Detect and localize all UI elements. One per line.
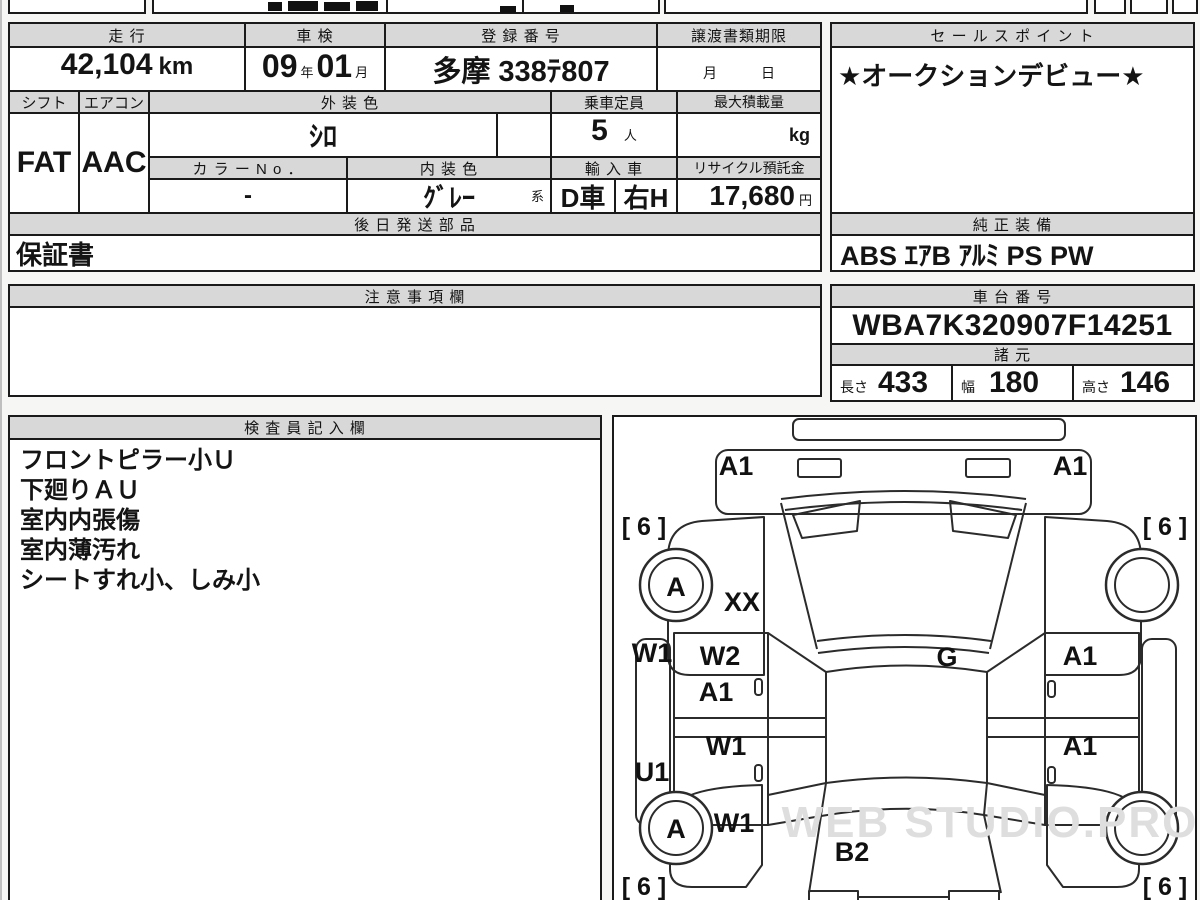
registration-header-label: 登 録 番 号 [481,25,561,46]
top-cut-cell [1094,0,1126,14]
spec-length-cell: 長さ 433 [830,364,953,402]
spec-length-label: 長さ [840,377,868,397]
interior-color-text: ｸﾞﾚｰ [423,178,475,215]
recycle-fee-value: 17,680 円 [676,178,822,214]
mileage-number: 42,104 [61,48,153,82]
shift-value: FAT [8,112,80,214]
equipment-text: ABS ｴｱB ｱﾙﾐ PS PW [840,234,1094,273]
recycle-header: リサイクル預託金 [676,156,822,180]
top-cut-cell [1172,0,1198,14]
damage-code-label: W1 [706,731,747,761]
handle-text: 右H [624,178,669,215]
later-parts-value: 保証書 [8,234,822,272]
equipment-value: ABS ｴｱB ｱﾙﾐ PS PW [830,234,1195,272]
capacity-header: 乗車定員 [550,90,678,114]
car-diagram-box: WEB STUDIO.PRO A1A1[ 6 ][ 6 ]AXXW1W2A1GA… [612,415,1197,900]
top-cut-cell [1130,0,1168,14]
cut-text-fragment [356,1,378,11]
import-header-label: 輸 入 車 [585,158,643,179]
recycle-header-label: リサイクル預託金 [693,158,804,178]
sales-point-text: ★オークションデビュー★ [838,56,1145,93]
transfer-month-label: 月 [703,63,717,83]
capacity-number: 5 [591,114,608,148]
cut-text-fragment [560,5,574,12]
notes-header-label: 注 意 事 項 欄 [365,286,466,307]
damage-code-label: A1 [719,451,754,481]
registration-header: 登 録 番 号 [384,22,658,48]
damage-code-label: [ 6 ] [1143,873,1187,900]
sales-point-value: ★オークションデビュー★ [830,46,1195,214]
capacity-unit: 人 [624,125,637,144]
damage-code-label: A1 [699,677,734,707]
top-cut-cell [8,0,146,14]
recycle-fee-unit: 円 [799,190,812,209]
import-type-text: D車 [561,178,606,215]
max-load-unit: kg [789,125,810,146]
transfer-docs-header: 譲渡書類期限 [656,22,822,48]
mileage-header: 走 行 [8,22,246,48]
damage-code-label: [ 6 ] [622,873,666,900]
cut-text-fragment [500,6,516,13]
cut-text-fragment [268,2,282,11]
shift-header-label: シフト [21,92,66,113]
max-load-header-label: 最大積載量 [714,92,784,112]
damage-code-label: B2 [835,837,870,867]
mileage-value: 42,104 km [8,46,246,92]
damage-code-label: A1 [1053,451,1088,481]
color-no-header-label: カ ラ ー N o ． [192,158,303,179]
later-parts-header-label: 後 日 発 送 部 品 [354,214,476,235]
chassis-header: 車 台 番 号 [830,284,1195,308]
damage-code-label: G [936,642,957,672]
inspection-value: 09 年 01 月 [244,46,386,92]
inspection-month: 01 [317,48,353,85]
exterior-color-value: ｼﾛ [148,112,498,158]
month-suffix: 月 [355,62,368,81]
shift-text: FAT [17,146,71,180]
spec-height-value: 146 [1120,366,1170,400]
recycle-fee-number: 17,680 [709,180,795,212]
exterior-color-text: ｼﾛ [309,115,337,155]
interior-color-header: 内 装 色 [346,156,552,180]
mileage-unit: km [159,53,194,81]
registration-number: 多摩 338ﾃ807 [432,48,609,90]
scan-edge [0,0,2,900]
damage-code-label: A [666,572,686,602]
equipment-header: 純 正 装 備 [830,212,1195,236]
inspector-box: フロントピラー小Ｕ 下廻りＡＵ 室内内張傷 室内薄汚れ シートすれ小、しみ小 [8,438,602,900]
aircon-text: AAC [82,146,147,180]
registration-value: 多摩 338ﾃ807 [384,46,658,92]
spec-height-label: 高さ [1082,377,1110,397]
cut-text-fragment [324,2,350,11]
inspection-header: 車 検 [244,22,386,48]
max-load-value: kg [676,112,822,158]
max-load-header: 最大積載量 [676,90,822,114]
damage-code-label: U1 [635,757,670,787]
inspector-line: 室内内張傷 [20,506,140,536]
interior-color-value: ｸﾞﾚｰ 系 [346,178,552,214]
damage-code-label: [ 6 ] [622,513,666,541]
inspector-header: 検 査 員 記 入 欄 [8,415,602,440]
inspector-header-label: 検 査 員 記 入 欄 [244,417,366,438]
damage-code-label: XX [724,587,760,617]
spec-width-label: 幅 [961,377,975,397]
exterior-color-header-label: 外 装 色 [321,92,379,113]
aircon-value: AAC [78,112,150,214]
notes-box [8,306,822,397]
damage-code-label: [ 6 ] [1143,513,1187,541]
later-parts-text: 保証書 [16,235,94,272]
transfer-docs-header-label: 譲渡書類期限 [691,25,787,46]
equipment-header-label: 純 正 装 備 [973,214,1053,235]
spec-width-value: 180 [989,366,1039,400]
chassis-header-label: 車 台 番 号 [973,286,1053,307]
damage-code-label: W2 [700,641,741,671]
inspector-line: フロントピラー小Ｕ [20,446,236,476]
cut-text-fragment [288,1,318,11]
car-diagram: WEB STUDIO.PRO A1A1[ 6 ][ 6 ]AXXW1W2A1GA… [614,417,1195,900]
sales-point-header-label: セ ー ル ス ポ イ ン ト [930,25,1094,46]
notes-header: 注 意 事 項 欄 [8,284,822,308]
capacity-header-label: 乗車定員 [584,92,644,113]
damage-code-label: W1 [632,638,673,668]
spec-width-cell: 幅 180 [951,364,1074,402]
color-no-header: カ ラ ー N o ． [148,156,348,180]
handle-value: 右H [614,178,678,214]
top-cut-cell [664,0,1088,14]
specs-header-label: 諸 元 [994,344,1031,365]
chassis-value: WBA7K320907F14251 [830,306,1195,345]
inspection-header-label: 車 検 [296,25,333,46]
transfer-day-label: 日 [761,63,775,83]
chassis-number-text: WBA7K320907F14251 [852,309,1172,343]
damage-code-label: W1 [714,808,755,838]
year-suffix: 年 [300,62,313,81]
inspector-line: シートすれ小、しみ小 [20,566,260,596]
sales-point-header: セ ー ル ス ポ イ ン ト [830,22,1195,48]
later-parts-header: 後 日 発 送 部 品 [8,212,822,236]
damage-code-label: A1 [1063,641,1098,671]
mileage-header-label: 走 行 [108,25,145,46]
import-header: 輸 入 車 [550,156,678,180]
color-no-text: - [244,182,252,210]
shift-header: シフト [8,90,80,114]
spec-height-cell: 高さ 146 [1072,364,1195,402]
inspection-year: 09 [262,48,298,85]
top-cut-cell [522,0,660,14]
auction-sheet: 走 行 車 検 登 録 番 号 譲渡書類期限 42,104 km 09 年 01… [0,0,1200,900]
import-type-value: D車 [550,178,616,214]
aircon-header: エアコン [78,90,150,114]
interior-color-suffix: 系 [531,186,544,205]
inspector-line: 下廻りＡＵ [20,476,140,506]
aircon-header-label: エアコン [84,92,144,113]
capacity-value: 5 人 [550,112,678,158]
exterior-color-subcell [496,112,552,158]
inspector-line: 室内薄汚れ [20,536,140,566]
color-no-value: - [148,178,348,214]
damage-code-label: A1 [1063,731,1098,761]
exterior-color-header: 外 装 色 [148,90,552,114]
transfer-docs-value: 月 日 [656,46,822,92]
specs-header: 諸 元 [830,343,1195,366]
spec-length-value: 433 [878,366,928,400]
interior-color-header-label: 内 装 色 [420,158,478,179]
damage-code-label: A [666,814,686,844]
